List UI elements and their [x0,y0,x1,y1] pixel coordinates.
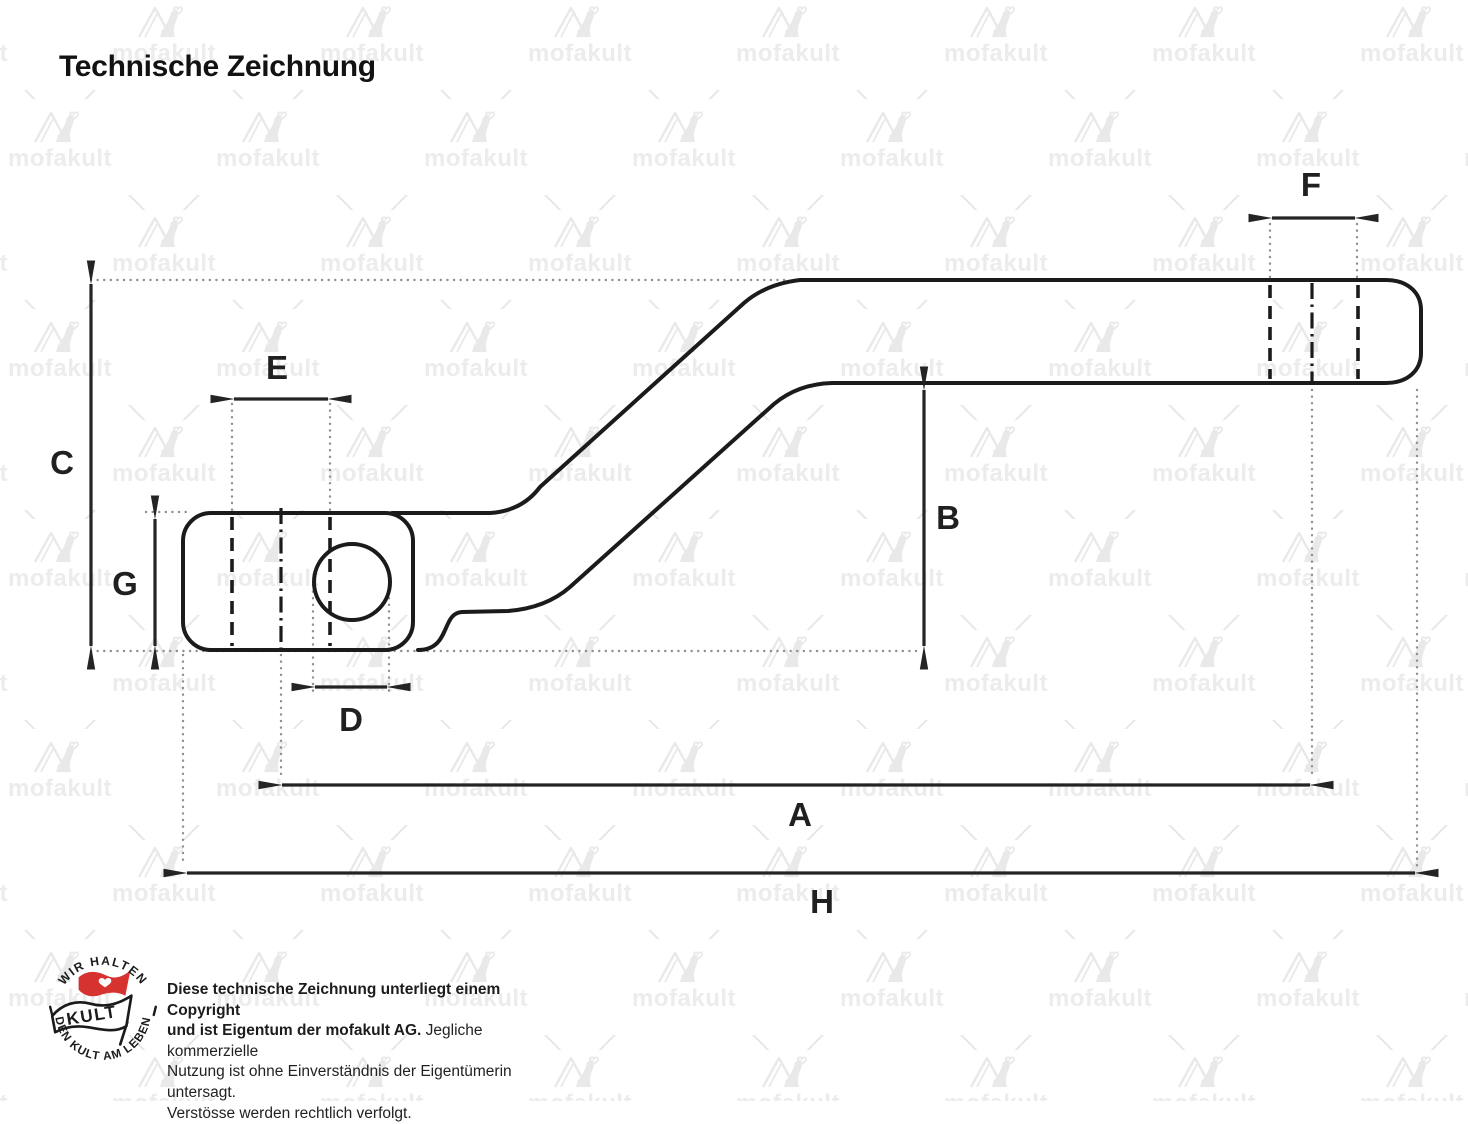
hub-hole [314,544,390,620]
dimension-label-h: H [810,883,834,920]
copyright-text: Diese technische Zeichnung unterliegt ei… [167,980,557,1124]
mofakult-logo: KULT WIR HALTEN DEN KULT AM LEBEN [40,951,170,1081]
logo-red-pennant [79,970,131,996]
hidden-edge-lines [232,285,1358,646]
copyright-line-1: Diese technische Zeichnung unterliegt ei… [167,980,557,1021]
dimension-label-a: A [788,796,812,833]
drawing-layer: C G E F D B A H [0,0,1468,1101]
copyright-line-3: Nutzung ist ohne Einverständnis der Eige… [167,1062,557,1103]
page-title: Technische Zeichnung [59,50,376,84]
dimension-label-c: C [50,444,74,481]
dimension-label-g: G [112,565,138,602]
dimension-label-e: E [266,349,288,386]
dimension-label-b: B [936,499,960,536]
dimension-label-f: F [1301,166,1321,203]
copyright-line-4: Verstösse werden rechtlich verfolgt. [167,1104,557,1124]
copyright-line-2: und ist Eigentum der mofakult AG. Jeglic… [167,1021,557,1062]
lever-arm-outline [392,280,1421,650]
part-outline [183,280,1421,650]
dimension-label-d: D [339,701,363,738]
extension-lines [91,224,1417,866]
hub-boss [183,513,413,650]
dimension-lines [91,218,1415,873]
center-lines [281,283,1312,655]
